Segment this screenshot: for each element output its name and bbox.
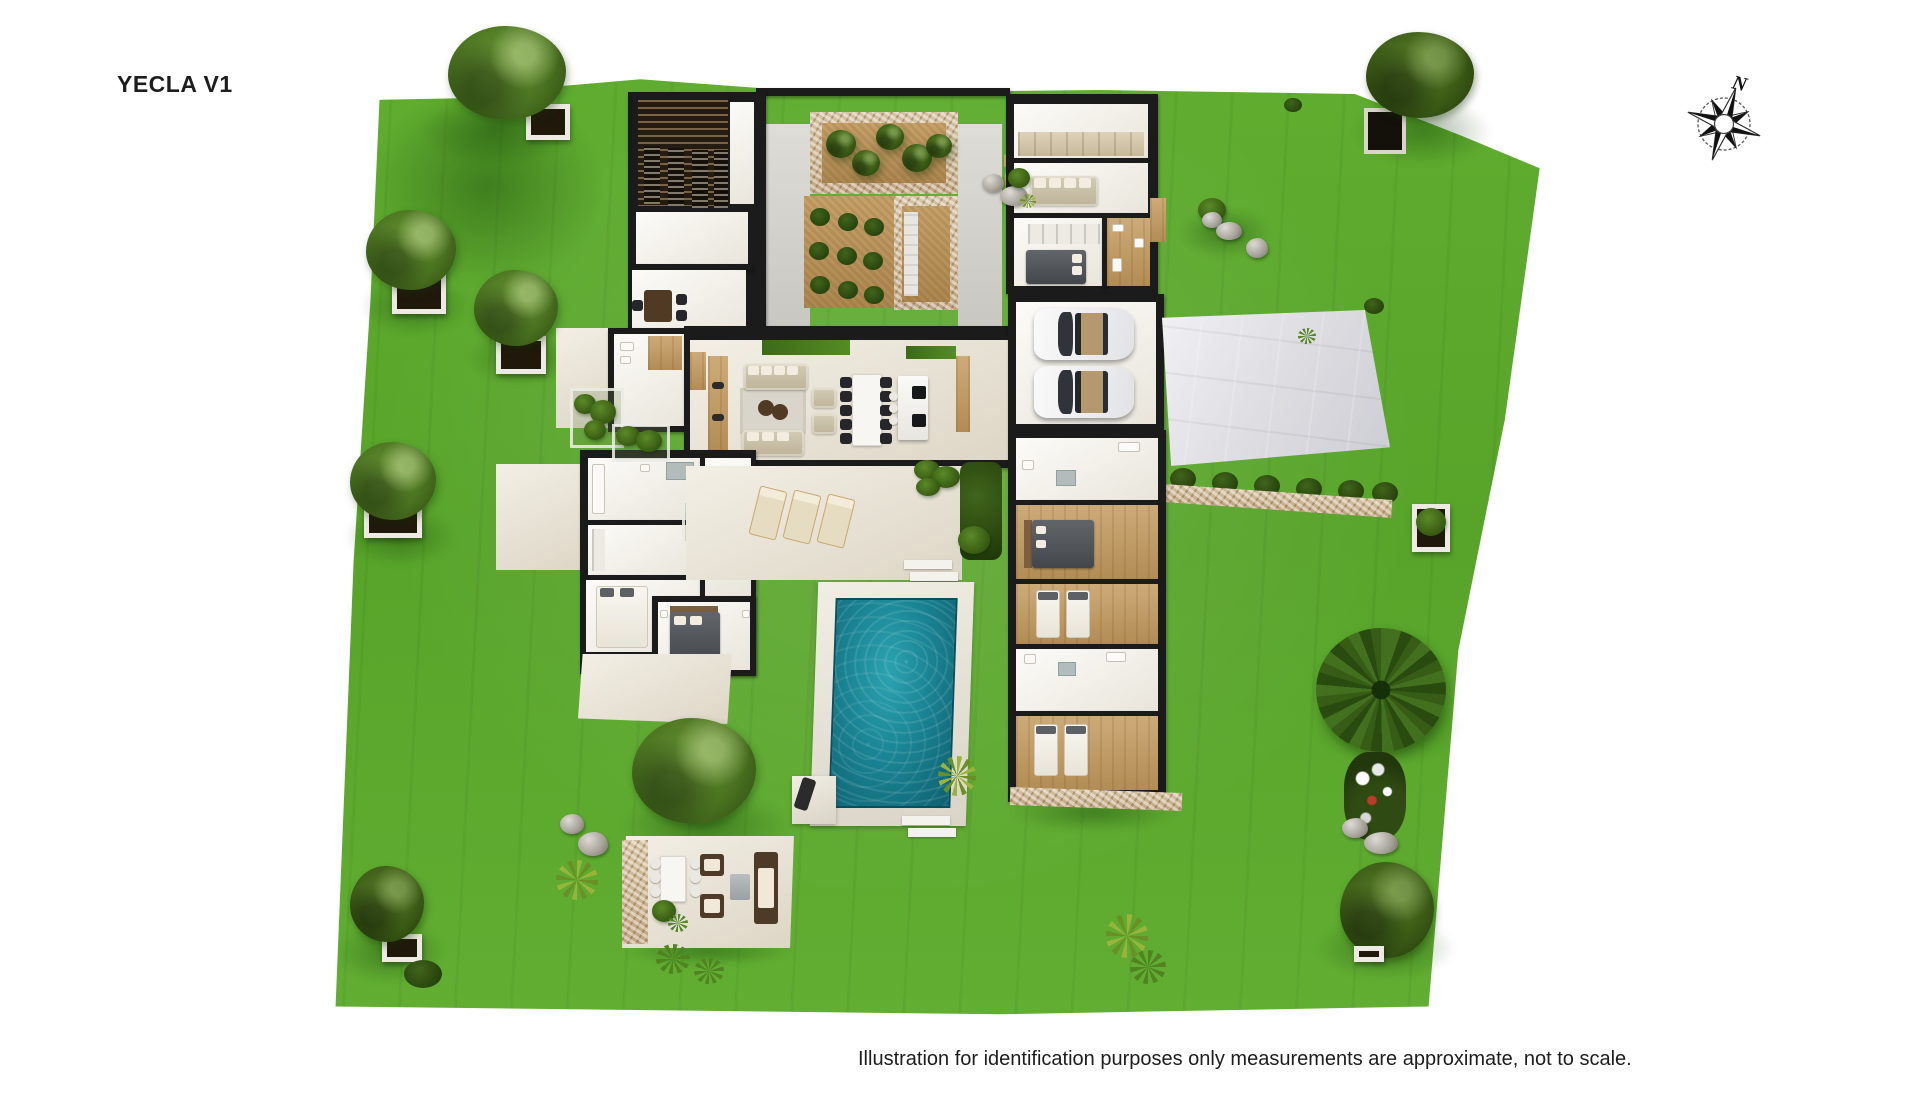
tree [350, 442, 436, 520]
grass-tuft [1130, 950, 1166, 984]
courtyard-path-right [958, 124, 1002, 338]
garden-shrub [810, 208, 830, 226]
bed-pillow [1036, 540, 1046, 548]
sofa-pillow [762, 432, 774, 441]
dining-chair [840, 419, 852, 430]
toilet [1022, 460, 1034, 470]
bed-pillow [1036, 526, 1046, 534]
kitchen-sink [912, 414, 926, 427]
bath-fixture [1134, 238, 1144, 248]
entry-wood-floor [648, 336, 682, 370]
shower [1056, 470, 1076, 486]
bush [404, 960, 442, 988]
grass-tuft [1020, 194, 1036, 208]
rock [1246, 238, 1268, 258]
courtyard-tree [852, 150, 880, 176]
outdoor-chair [650, 872, 661, 883]
dining-chair [840, 391, 852, 402]
disclaimer-text: Illustration for identification purposes… [858, 1048, 1632, 1071]
grass-tuft [938, 756, 976, 796]
bed-pillow [690, 616, 702, 625]
spiky-plant [556, 860, 598, 900]
dining-chair [840, 377, 852, 388]
grass-tuft [656, 944, 690, 974]
sofa-pillow [777, 432, 789, 441]
bath-fixture [1112, 224, 1124, 232]
car [1034, 366, 1134, 418]
office-chair [632, 300, 643, 311]
bed-pillow [1038, 592, 1058, 600]
tree [350, 866, 424, 942]
rock [1342, 818, 1368, 838]
tree [448, 26, 566, 120]
sofa-pillow [761, 366, 772, 375]
outdoor-table [660, 856, 686, 902]
grass-tuft [1298, 328, 1316, 344]
tree [474, 270, 558, 346]
outdoor-armchair [700, 854, 724, 876]
cooktop [912, 386, 926, 399]
patio-plant [668, 914, 688, 932]
tree-planter [1354, 946, 1384, 962]
courtyard-beam [756, 88, 1010, 96]
outdoor-chair [650, 886, 661, 897]
storage-rack [714, 150, 728, 208]
courtyard-tree [926, 134, 952, 158]
tree [632, 718, 756, 824]
illustration-canvas: YECLA V1 N Illustration for identif [0, 0, 1920, 1097]
terrace-step [904, 560, 952, 569]
garden-shrub [838, 213, 858, 231]
outdoor-coffee-table [730, 874, 750, 900]
living-north-grass [762, 340, 850, 355]
vanity [1106, 652, 1126, 662]
bed-pillow [674, 616, 686, 625]
tree [1366, 32, 1474, 118]
vanity-counter [592, 464, 605, 514]
planter-bush [1416, 508, 1446, 536]
garden-shrub [864, 218, 884, 236]
nightstand [660, 610, 668, 618]
tree [366, 210, 456, 290]
planter-east-deck [904, 212, 918, 296]
bed-pillow [1036, 726, 1056, 734]
bed-pillow [1066, 726, 1086, 734]
garden-shrub [809, 242, 829, 260]
dining-chair [840, 405, 852, 416]
sofa-pillow [1049, 178, 1061, 188]
planter-bush [636, 430, 662, 452]
bar-stool [889, 404, 898, 413]
bed-pillow [600, 588, 614, 597]
office-chair [676, 310, 687, 321]
sofa-pillow [1034, 178, 1046, 188]
terrace-plants [916, 478, 940, 496]
living-north-grass [906, 346, 956, 359]
vanity [1118, 442, 1140, 452]
pool-step [908, 828, 956, 837]
storage-rack [644, 146, 660, 204]
armchair [812, 414, 836, 434]
bush [1364, 298, 1384, 314]
toilet [1024, 654, 1036, 664]
garden-shrub [810, 276, 830, 294]
outdoor-armchair [700, 894, 724, 918]
tv-unit [712, 414, 724, 421]
bath-fixture [1112, 258, 1122, 272]
courtyard-tree [826, 130, 856, 158]
rock [1216, 222, 1242, 240]
bed-pillow [1072, 254, 1082, 263]
sofa-pillow [1064, 178, 1076, 188]
office-chair [676, 294, 687, 305]
garden-shrub [837, 247, 857, 265]
shower [1058, 662, 1076, 676]
rock [560, 814, 584, 834]
car [1034, 308, 1134, 360]
rock [982, 174, 1004, 192]
courtyard-tree [876, 124, 904, 150]
compass-rose-icon: N [1682, 72, 1772, 176]
patio-stone-wall [622, 840, 648, 944]
office-desk [644, 290, 672, 322]
side-terrace [496, 464, 588, 570]
tree [1340, 862, 1434, 958]
compass-north-label: N [1729, 72, 1751, 97]
dining-chair [840, 433, 852, 444]
dining-chair [880, 433, 892, 444]
bush [1284, 98, 1302, 112]
closet-shelf [592, 529, 605, 571]
toilet [640, 464, 650, 472]
headboard [1024, 520, 1032, 568]
tv-unit [712, 382, 724, 389]
kitchen-counter [956, 356, 970, 432]
grass-tuft [694, 958, 724, 984]
wardrobe-row [1018, 132, 1144, 156]
dining-chair [880, 377, 892, 388]
site-plan [0, 0, 1920, 1097]
terrace-step [910, 572, 958, 581]
bush [1008, 168, 1030, 188]
outdoor-sofa [754, 852, 778, 924]
coffee-decor [772, 404, 788, 420]
living-door-wood [690, 352, 706, 390]
sofa-pillow [748, 366, 759, 375]
sofa-pillow [787, 366, 798, 375]
sofa-pillow [774, 366, 785, 375]
palm-tree [1316, 628, 1446, 752]
driveway [1162, 310, 1390, 466]
tv-feature-wall [708, 356, 728, 454]
armchair [812, 388, 836, 408]
outdoor-chair [650, 858, 661, 869]
master-terrace [578, 654, 732, 724]
storage-rack [668, 148, 684, 206]
utility-corridor [730, 102, 754, 204]
hall-fixture [620, 356, 631, 364]
bed-pillow [1072, 266, 1082, 275]
sofa-pillow [1079, 178, 1091, 188]
closet-row [1028, 224, 1100, 244]
hall-fixture [620, 342, 634, 351]
bed-pillow [1068, 592, 1088, 600]
rock [1364, 832, 1398, 854]
garden-shrub [864, 286, 884, 304]
pool-step [902, 816, 950, 825]
garden-shrub [863, 252, 883, 270]
storage-rack [692, 150, 708, 208]
sofa-pillow [747, 432, 759, 441]
bar-stool [889, 416, 898, 425]
east-deck [1150, 198, 1166, 242]
dining-table [852, 374, 882, 446]
garden-shrub [838, 281, 858, 299]
bed-pillow [620, 588, 634, 597]
nightstand [742, 610, 750, 618]
rock [578, 832, 608, 856]
entry-bush [584, 420, 606, 440]
hedge-bush [958, 526, 990, 554]
utility-room-floor [636, 212, 748, 264]
bathroom-floor [1016, 649, 1158, 711]
bar-stool [889, 392, 898, 401]
